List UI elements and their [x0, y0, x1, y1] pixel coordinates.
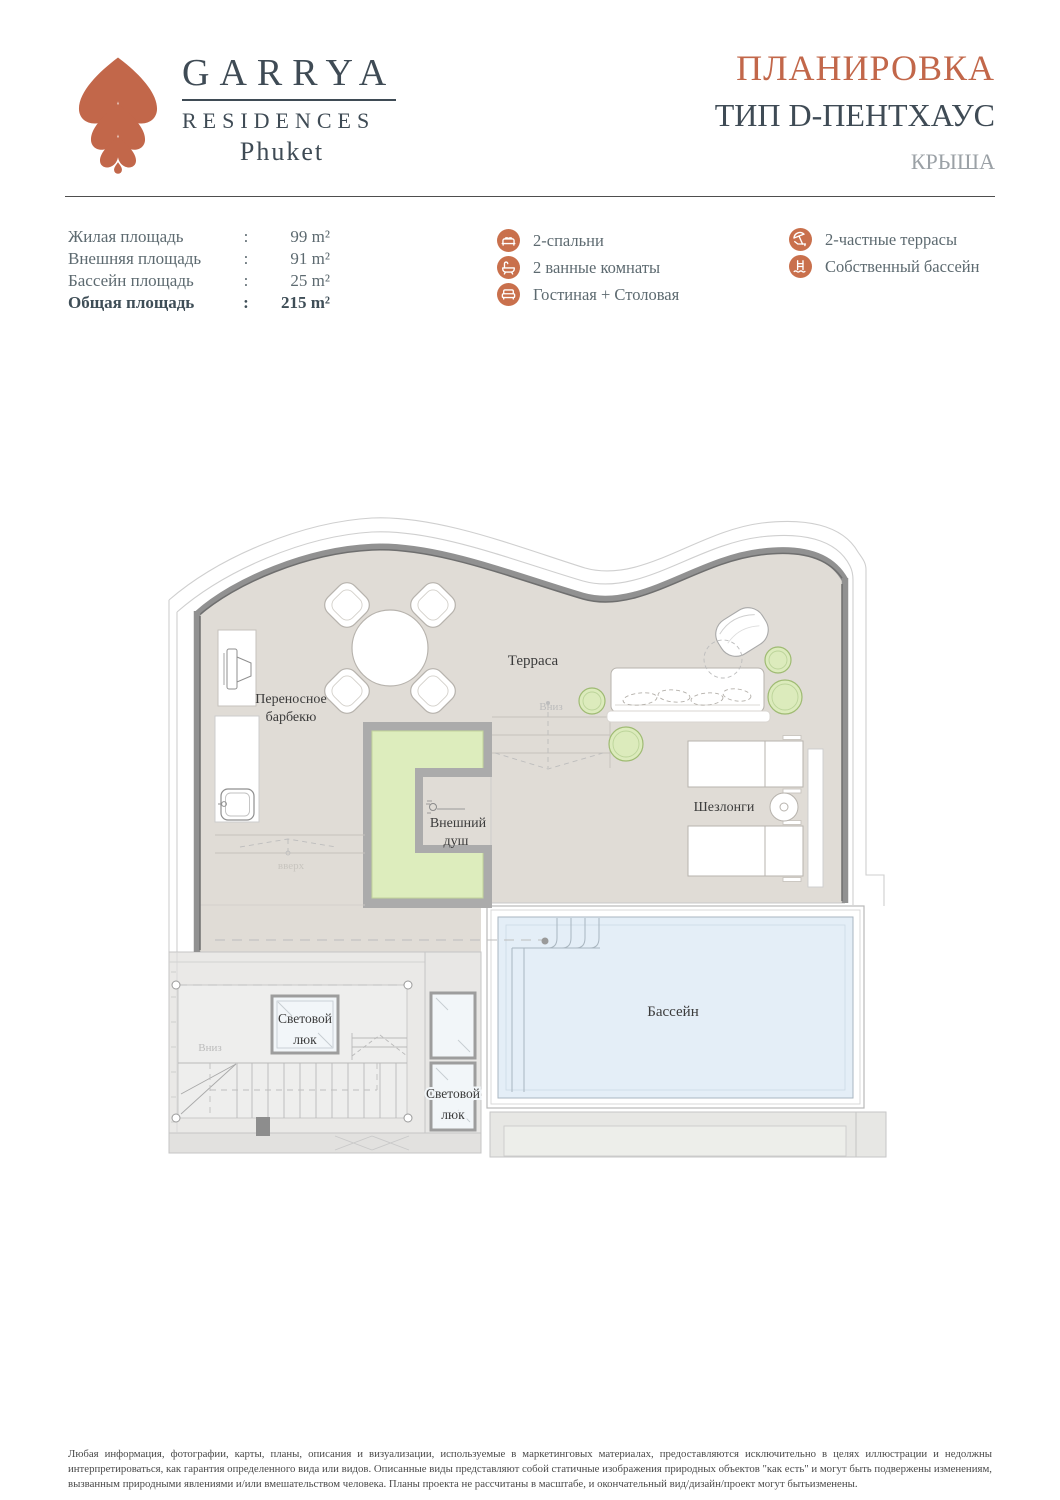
skylight-label: люк: [441, 1107, 465, 1122]
bed-icon: [497, 229, 520, 252]
bbq-label: Переносное: [255, 692, 326, 707]
area-value: 215 m²: [252, 292, 330, 314]
area-row-living: Жилая площадь : 99 m²: [68, 226, 330, 248]
area-separator: :: [240, 248, 252, 270]
skylight-label: Световой: [426, 1086, 480, 1101]
skylight-strip: Световой люк: [425, 952, 481, 1133]
drain-symbol: [542, 938, 549, 945]
feature-label: Собственный бассейн: [825, 257, 979, 277]
shower-label: Внешний: [430, 816, 487, 831]
dining-table: [352, 610, 428, 686]
brand-subtitle: RESIDENCES: [182, 110, 392, 132]
logo-text: GARRYA RESIDENCES Phuket: [182, 54, 392, 165]
pool-deck: [490, 1112, 886, 1157]
feature-bathrooms: 2 ванные комнаты: [497, 254, 679, 281]
side-table: [770, 793, 798, 821]
area-table: Жилая площадь : 99 m² Внешняя площадь : …: [68, 226, 330, 314]
feature-label: 2-частные террасы: [825, 230, 957, 250]
feature-label: Гостиная + Столовая: [533, 285, 679, 305]
portable-bbq: [218, 630, 256, 706]
garrya-tree-icon: [70, 52, 166, 174]
brand-location: Phuket: [182, 139, 382, 165]
area-separator: :: [240, 270, 252, 292]
sofa-icon: [497, 283, 520, 306]
bathtub-icon: [497, 256, 520, 279]
feature-label: 2 ванные комнаты: [533, 258, 660, 278]
skylight-label: Световой: [278, 1011, 332, 1026]
area-separator: :: [240, 226, 252, 248]
brochure-page: GARRYA RESIDENCES Phuket ПЛАНИРОВКА ТИП …: [0, 0, 1060, 1500]
page-title: ПЛАНИРОВКА: [715, 50, 995, 88]
area-value: 91 m²: [252, 248, 330, 270]
header-divider: [65, 196, 995, 197]
skylight-label: люк: [293, 1032, 317, 1047]
column-block: [256, 1117, 270, 1136]
pool-ladder-icon: [789, 255, 812, 278]
area-label: Общая площадь: [68, 292, 240, 314]
title-block: ПЛАНИРОВКА ТИП D-ПЕНТХАУС КРЫША: [715, 50, 995, 173]
feature-label: 2-спальни: [533, 231, 604, 251]
feature-terraces: 2-частные террасы: [789, 226, 979, 253]
skylight-1: Световой люк: [272, 996, 338, 1053]
shower-label: душ: [444, 834, 469, 849]
right-planter: [808, 749, 823, 887]
area-separator: :: [240, 292, 252, 314]
down-label: Вниз: [539, 701, 562, 713]
terrace-label: Терраса: [508, 653, 559, 669]
feature-list-right: 2-частные террасы Собственный бассейн: [789, 226, 979, 280]
feature-bedrooms: 2-спальни: [497, 227, 679, 254]
pool: Бассейн: [487, 906, 864, 1108]
area-value: 99 m²: [252, 226, 330, 248]
pool-label: Бассейн: [647, 1004, 698, 1020]
outdoor-shower-block: Внешний душ: [363, 722, 492, 908]
floor-level: КРЫША: [715, 150, 995, 173]
feature-living-dining: Гостиная + Столовая: [497, 281, 679, 308]
planter-box: [607, 668, 770, 722]
up-label: вверх: [278, 860, 305, 872]
feature-private-pool: Собственный бассейн: [789, 253, 979, 280]
area-row-external: Внешняя площадь : 91 m²: [68, 248, 330, 270]
left-planter-sink: [215, 716, 259, 822]
feature-list-left: 2-спальни 2 ванные комнаты: [497, 227, 679, 308]
brand-name: GARRYA: [182, 54, 396, 101]
area-row-total: Общая площадь : 215 m²: [68, 292, 330, 314]
bbq-label: барбекю: [266, 710, 317, 725]
area-value: 25 m²: [252, 270, 330, 292]
logo: GARRYA RESIDENCES Phuket: [70, 52, 392, 174]
loungers-label: Шезлонги: [694, 800, 755, 815]
unit-type: ТИП D-ПЕНТХАУС: [715, 99, 995, 133]
floor-plan: Световой люк Вниз Световой люк: [150, 495, 910, 1175]
area-row-pool: Бассейн площадь : 25 m²: [68, 270, 330, 292]
area-label: Внешняя площадь: [68, 248, 240, 270]
disclaimer-text: Любая информация, фотографии, карты, пла…: [68, 1447, 992, 1493]
sun-lounger-umbrella-icon: [789, 228, 812, 251]
area-label: Жилая площадь: [68, 226, 240, 248]
area-label: Бассейн площадь: [68, 270, 240, 292]
down-label: Вниз: [198, 1042, 221, 1054]
